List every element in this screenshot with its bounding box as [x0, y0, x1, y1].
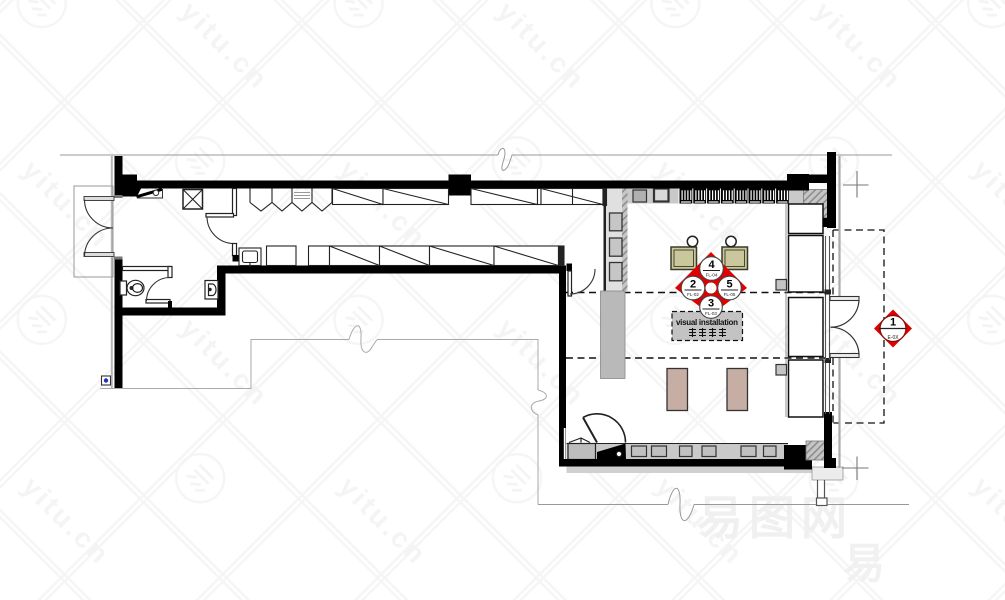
svg-text:FL-03: FL-03: [705, 311, 717, 316]
svg-text:5: 5: [726, 279, 732, 291]
svg-text:4: 4: [708, 259, 715, 271]
svg-text:visual installation: visual installation: [676, 318, 738, 327]
svg-text:易: 易: [843, 540, 885, 587]
svg-text:E-0X: E-0X: [887, 335, 899, 341]
svg-text:2: 2: [690, 279, 696, 291]
svg-text:3: 3: [708, 298, 714, 310]
svg-text:FL-04: FL-04: [706, 273, 718, 278]
svg-text:FL-02: FL-02: [687, 292, 699, 297]
svg-text:1: 1: [890, 317, 896, 329]
svg-text:易图网: 易图网: [697, 492, 853, 544]
svg-text:FL-05: FL-05: [724, 292, 736, 297]
